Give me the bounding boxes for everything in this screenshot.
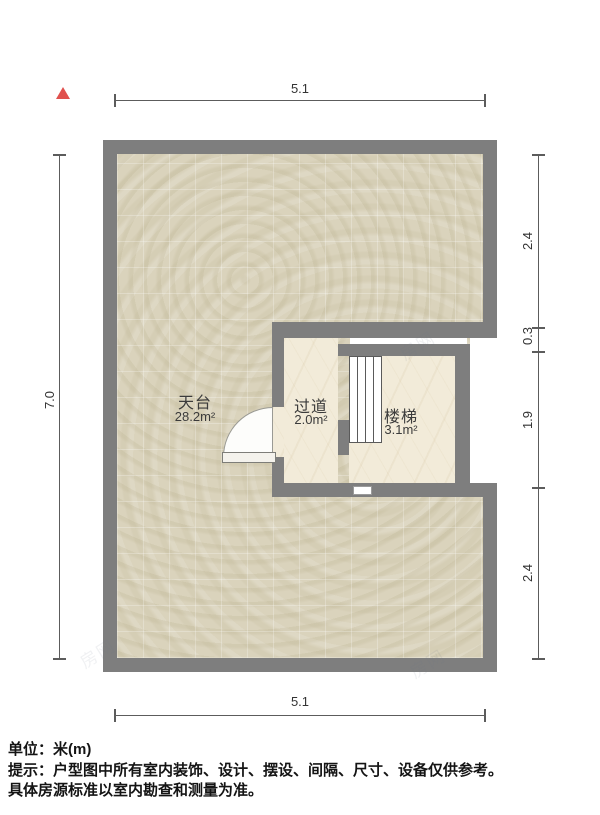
dim-tick [532, 487, 545, 489]
dim-tick [114, 94, 116, 107]
dim-label-right-3: 1.9 [520, 398, 536, 442]
dim-label-right-1: 2.4 [520, 219, 536, 263]
room-area-corridor: 2.0m² [261, 412, 361, 427]
block-bottom-wall [272, 483, 497, 497]
dim-tick [53, 154, 66, 156]
dim-tick [114, 709, 116, 722]
floor-plan-page: 5.1 5.1 7.0 2.4 0.3 1.9 2.4 天台 28. [0, 0, 600, 815]
dim-label-bottom: 5.1 [270, 694, 330, 710]
wall-vent-marker [353, 486, 372, 495]
dim-tick [532, 154, 545, 156]
dim-tick [53, 658, 66, 660]
door-leaf [222, 452, 276, 463]
room-area-terrace: 28.2m² [145, 409, 245, 424]
unit-note: 单位：米(m) [8, 738, 91, 759]
tip-note-line1: 提示：户型图中所有室内装饰、设计、摆设、间隔、尺寸、设备仅供参考。 [8, 759, 503, 780]
dim-tick [532, 658, 545, 660]
dim-line-left [59, 155, 60, 659]
exterior-notch [470, 338, 497, 483]
terrace-bottom-wall [272, 322, 497, 338]
dim-label-top: 5.1 [270, 81, 330, 97]
dim-tick [484, 709, 486, 722]
dim-line-right [538, 155, 539, 659]
dim-label-right-2: 0.3 [520, 314, 536, 358]
stair-room-right-wall [455, 344, 470, 483]
dim-label-left: 7.0 [42, 378, 58, 422]
dim-tick [484, 94, 486, 107]
tip-note-line2: 具体房源标准以室内勘查和测量为准。 [8, 779, 263, 800]
dim-label-right-4: 2.4 [520, 551, 536, 595]
dim-line-top [115, 100, 485, 101]
dim-line-bottom [115, 715, 485, 716]
room-area-stairs: 3.1m² [351, 422, 451, 437]
north-arrow-icon [56, 87, 70, 99]
